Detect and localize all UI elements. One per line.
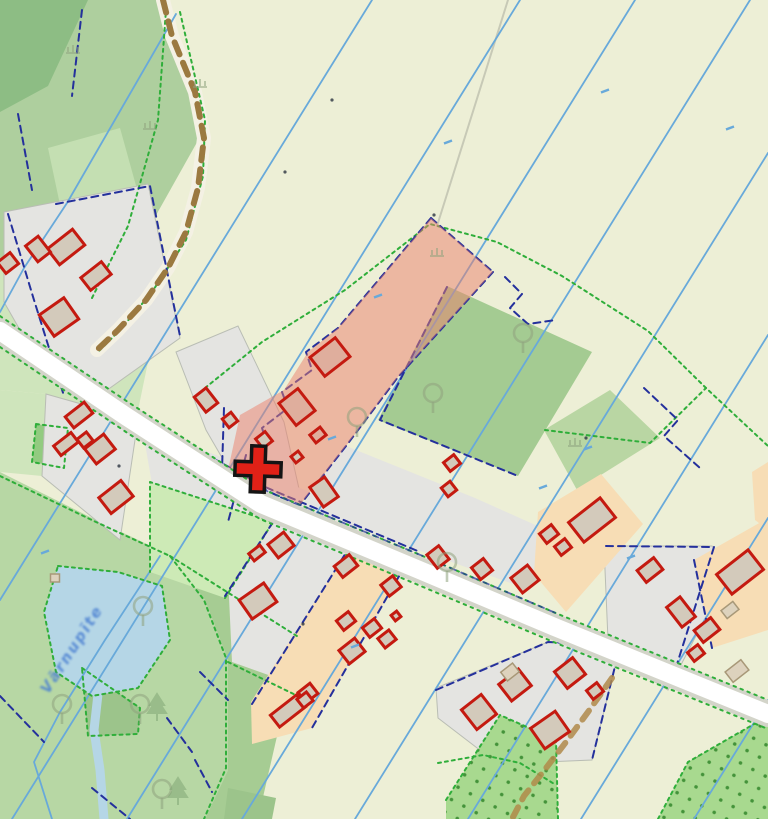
map-canvas[interactable]: Vārnupīte <box>0 0 768 819</box>
map-layers <box>0 0 768 819</box>
map-viewport: Vārnupīte <box>0 0 768 819</box>
